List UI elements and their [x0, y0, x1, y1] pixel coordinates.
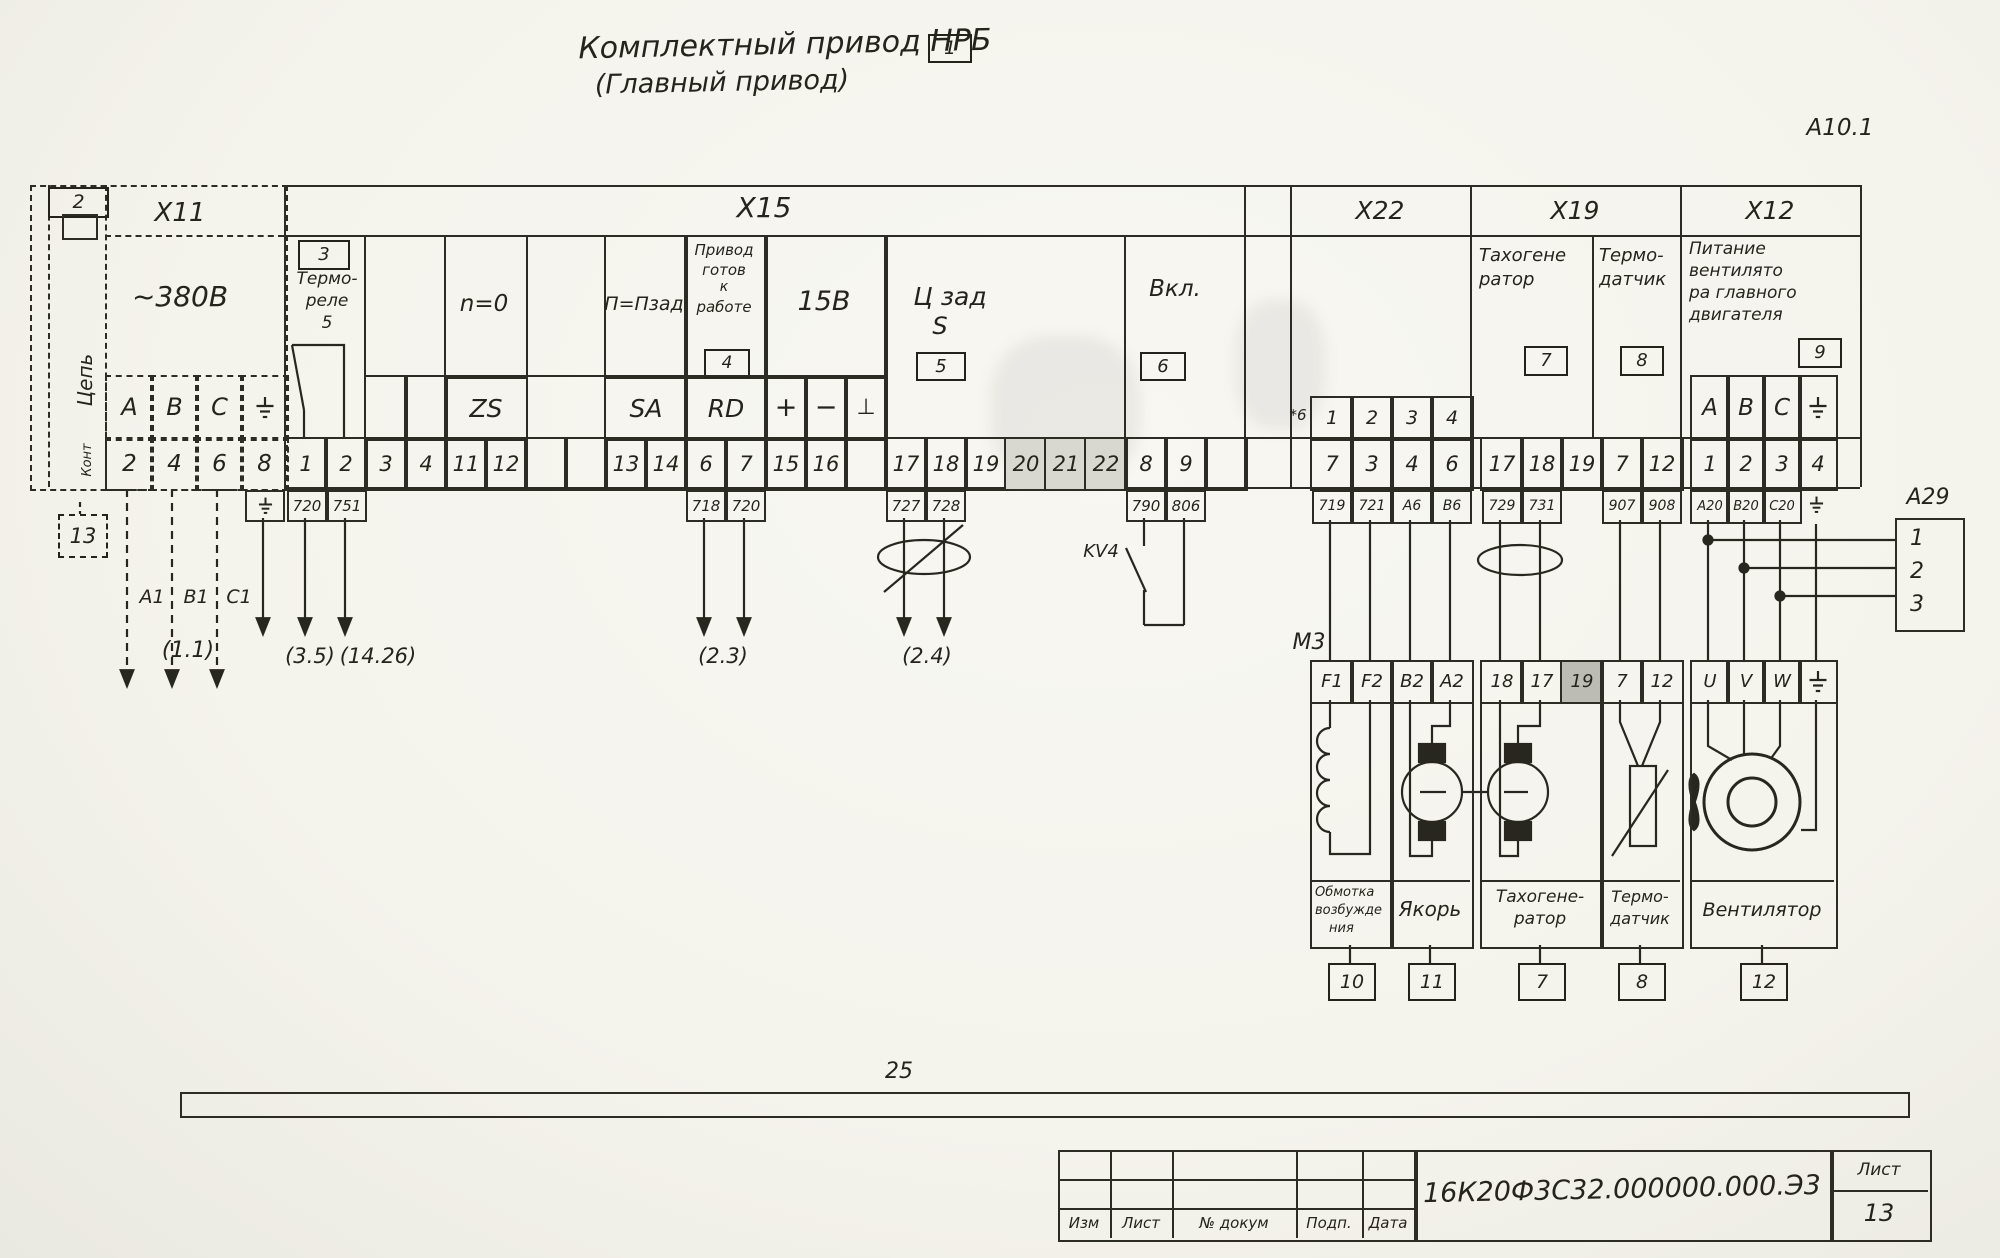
x15-contact-2: 3 — [364, 437, 408, 491]
x19-contact-1: 18 — [1520, 437, 1564, 491]
x22-contact-2: 4 — [1390, 437, 1434, 491]
x19-wire-0: 729 — [1482, 490, 1522, 524]
x15-contact-6 — [524, 437, 568, 491]
x15-contact-8: 13 — [604, 437, 648, 491]
x22-label-2: 3 — [1390, 396, 1434, 441]
label-empty-4 — [404, 375, 448, 441]
wiring-overlay — [0, 0, 2000, 1258]
tb-sheet-label: Лист — [1836, 1156, 1922, 1184]
x22-wire-2: А6 — [1392, 490, 1432, 524]
a29-label: А29 — [1896, 484, 1960, 512]
grid-line — [1860, 185, 1862, 487]
x19-thermo-l1: Термо- — [1596, 244, 1683, 268]
x19-tacho-l1: Тахогене — [1476, 244, 1589, 268]
x12-ref: 9 — [1798, 338, 1842, 368]
x12-wire-ground-icon — [1800, 490, 1832, 520]
label-plus: + — [764, 375, 808, 441]
vkl-ref: 6 — [1140, 352, 1186, 381]
x12-contact-2: 3 — [1762, 437, 1802, 491]
m3-terminal-9: U — [1690, 660, 1730, 704]
m3-ref-12: 12 — [1740, 963, 1788, 1001]
x19-contact-3: 7 — [1600, 437, 1644, 491]
x11-wire-ground-icon — [245, 490, 285, 522]
x22-contact-3: 6 — [1430, 437, 1474, 491]
x15-contact-12: 15 — [764, 437, 808, 491]
label-zs: ZS — [444, 375, 528, 441]
x12-wire-1: В20 — [1726, 490, 1766, 524]
x12-label-ground-icon — [1798, 375, 1838, 441]
x12-feed-l1: Питание — [1686, 238, 1839, 260]
label-rd: RD — [684, 375, 768, 441]
m3-terminal-0: F1 — [1310, 660, 1354, 704]
x12-contact-0: 1 — [1690, 437, 1730, 491]
m3-sec1-l2: возбужде — [1312, 902, 1391, 920]
x15-contact-17: 19 — [964, 437, 1008, 491]
x15-contact-9: 14 — [644, 437, 688, 491]
x19-wire-1: 731 — [1522, 490, 1562, 524]
x19-tacho-l2: ратор — [1476, 268, 1589, 292]
x11-label-1: В — [150, 375, 199, 441]
m3-terminal-6: 19 — [1560, 660, 1604, 704]
x15-contact-11: 7 — [724, 437, 768, 491]
x11-label-0: А — [105, 375, 154, 441]
wire-728: 728 — [926, 490, 966, 522]
m3-terminal-2: В2 — [1390, 660, 1434, 704]
kv4-contact-icon — [1126, 518, 1184, 625]
m3-ref-10: 10 — [1328, 963, 1376, 1001]
x19-wire-2: 907 — [1602, 490, 1642, 524]
x11-phase-a1: А1 — [132, 584, 172, 610]
x15-contact-4: 11 — [444, 437, 488, 491]
m3-sec1-l3: ния — [1326, 920, 1391, 938]
x15-contact-19: 21 — [1044, 437, 1088, 491]
x22-down-wires — [1330, 520, 1450, 660]
x15-contact-18: 20 — [1004, 437, 1048, 491]
m3-terminal-4: 18 — [1480, 660, 1524, 704]
grid-line — [284, 185, 1860, 187]
grid-line — [1124, 235, 1126, 437]
x11-phase-b1: В1 — [176, 584, 216, 610]
x19-wire-3: 908 — [1642, 490, 1682, 524]
m3-terminal-8: 12 — [1640, 660, 1684, 704]
tb-col-dokum: № докум — [1172, 1210, 1296, 1236]
x11-voltage: ~380В — [108, 278, 252, 316]
m3-terminal-7: 7 — [1600, 660, 1644, 704]
connector-header-x22: Х22 — [1335, 194, 1425, 226]
x11-phase-c1: С1 — [219, 584, 259, 610]
thermo-relay-line3: 5 — [282, 312, 372, 334]
x12-label-2: С — [1762, 375, 1802, 441]
x19-contact-4: 12 — [1640, 437, 1684, 491]
x12-contact-1: 2 — [1726, 437, 1766, 491]
c-zad-ref: 5 — [916, 352, 966, 381]
label-perp: ⊥ — [844, 375, 888, 441]
x11-label-ground-icon — [240, 375, 289, 441]
grid-line-dashed — [105, 235, 284, 237]
drive-ready-l2: готов — [686, 260, 762, 280]
a29-branch-wires — [1704, 536, 1896, 601]
label-sa: SA — [604, 375, 688, 441]
x22-label-3: 4 — [1430, 396, 1474, 441]
x15-contact-22: 9 — [1164, 437, 1208, 491]
vkl-label: Вкл. — [1133, 274, 1217, 304]
drawing-ref: А10.1 — [1795, 114, 1885, 142]
x11-label-2: С — [195, 375, 244, 441]
tb-col-podp: Подп. — [1296, 1210, 1362, 1236]
x15-contact-23 — [1204, 437, 1248, 491]
a29-pin-3: 3 — [1902, 589, 1932, 621]
kv4-label: KV4 — [1074, 540, 1128, 564]
wire-790: 790 — [1126, 490, 1166, 522]
wire-718-720-arrows — [704, 518, 744, 634]
thermo-relay-line1: Термо- — [282, 268, 372, 290]
x11-ref-bottom: 13 — [58, 514, 108, 558]
wire-751: 751 — [327, 490, 367, 522]
x12-feed-l2: вентилято — [1686, 260, 1839, 282]
x11-contact-1: 4 — [150, 437, 199, 491]
x22-contact-1: 3 — [1350, 437, 1394, 491]
n-zero-label: n=0 — [444, 288, 524, 320]
x22-wire-1: 721 — [1352, 490, 1392, 524]
m3-terminal-ground-icon — [1798, 660, 1838, 704]
drive-ready-l1: Привод — [686, 240, 762, 260]
a29-pin-1: 1 — [1902, 523, 1932, 555]
x15-contact-0: 1 — [284, 437, 328, 491]
x11-contact-3: 8 — [240, 437, 289, 491]
x22-wire-3: В6 — [1432, 490, 1472, 524]
x12-contact-3: 4 — [1798, 437, 1838, 491]
m3-ref-7: 7 — [1518, 963, 1566, 1001]
x22-note: *6 — [1284, 402, 1312, 428]
tb-sheet-number: 13 — [1844, 1196, 1914, 1232]
title-sheet-ref: 1 — [928, 34, 972, 63]
x11-circuit-col: Цепь — [71, 328, 101, 432]
x15-contact-16: 18 — [924, 437, 968, 491]
x15-contact-5: 12 — [484, 437, 528, 491]
m3-sec4-l1: Термо- — [1602, 886, 1678, 908]
thermo-relay-ref: 3 — [298, 240, 350, 270]
x12-down-wires — [1708, 520, 1816, 660]
m3-terminal-3: А2 — [1430, 660, 1474, 704]
x19-thermo-ref: 8 — [1620, 346, 1664, 376]
connector-header-x19: Х19 — [1530, 194, 1620, 226]
label-empty-3 — [364, 375, 408, 441]
wire-806: 806 — [1166, 490, 1206, 522]
shield-oval-icon — [878, 540, 970, 574]
m3-label: М3 — [1282, 628, 1336, 658]
c-zad-label1: Ц зад — [898, 280, 1002, 312]
tacho-shield-oval-icon — [1478, 545, 1562, 575]
page-title-line2: (Главный привод) — [592, 63, 853, 102]
tb-col-izm: Изм — [1058, 1210, 1110, 1236]
m3-sec1-l1: Обмотка — [1312, 884, 1391, 902]
x15-contact-20: 22 — [1084, 437, 1128, 491]
x11-dest-ref: (1.1) — [148, 636, 228, 666]
x22-wire-0: 719 — [1312, 490, 1352, 524]
x11-contact-col: Конт — [77, 435, 99, 485]
wire-727: 727 — [886, 490, 926, 522]
x15-left-down-wires — [263, 518, 345, 634]
connector-header-x12: Х12 — [1725, 194, 1815, 226]
m3-sec4-l2: датчик — [1602, 908, 1678, 930]
x19-thermo-l2: датчик — [1596, 268, 1683, 292]
tb-doc-number: 16К20Ф3С32.000000.000.Э3 — [1420, 1162, 1825, 1218]
grid-line — [1592, 235, 1594, 437]
x15-contact-13: 16 — [804, 437, 848, 491]
m3-sec5-l1: Вентилятор — [1692, 896, 1832, 924]
x22-label-0: 1 — [1310, 396, 1354, 441]
x15-contact-1: 2 — [324, 437, 368, 491]
p-pzad-label: П=Пзад — [598, 288, 690, 320]
v15-label: 15В — [779, 284, 869, 320]
m3-sec3-l1: Тахогене- — [1482, 886, 1598, 908]
x15-contact-21: 8 — [1124, 437, 1168, 491]
thermo-relay-symbol — [292, 345, 344, 437]
a29-pin-2: 2 — [1902, 556, 1932, 588]
x11-contact-2: 6 — [195, 437, 244, 491]
x15-contact-7 — [564, 437, 608, 491]
connector-header-x15: Х15 — [714, 190, 814, 226]
wire-720: 720 — [287, 490, 327, 522]
dest-ref-24: (2.4) — [894, 642, 960, 670]
x15-contact-15: 17 — [884, 437, 928, 491]
tb-col-list: Лист — [1110, 1210, 1172, 1236]
x19-tacho-ref: 7 — [1524, 346, 1568, 376]
x15-contact-14 — [844, 437, 888, 491]
x12-wire-2: С20 — [1762, 490, 1802, 524]
m3-terminal-10: V — [1726, 660, 1766, 704]
thermo-relay-line2: реле — [282, 290, 372, 312]
connector-header-x11: Х11 — [118, 196, 242, 230]
x11-contact-0: 2 — [105, 437, 154, 491]
m3-terminal-11: W — [1762, 660, 1802, 704]
x12-label-0: А — [1690, 375, 1730, 441]
c-zad-label2: S — [914, 312, 966, 342]
wire-718: 718 — [686, 490, 726, 522]
x15-contact-3: 4 — [404, 437, 448, 491]
wire-720b: 720 — [726, 490, 766, 522]
x12-label-1: В — [1726, 375, 1766, 441]
x15-contact-10: 6 — [684, 437, 728, 491]
m3-ref-11: 11 — [1408, 963, 1456, 1001]
x12-feed-l4: двигателя — [1686, 304, 1839, 326]
drive-ready-l4: работе — [686, 297, 762, 317]
schematic-canvas: Комплектный привод НРБ1(Главный привод)А… — [0, 0, 2000, 1258]
tb-col-data: Дата — [1362, 1210, 1414, 1236]
x22-label-1: 2 — [1350, 396, 1394, 441]
x19-contact-2: 19 — [1560, 437, 1604, 491]
bus-ref: 25 — [876, 1056, 922, 1088]
m3-ref-8: 8 — [1618, 963, 1666, 1001]
drive-ready-ref: 4 — [704, 349, 750, 378]
label-minus: − — [804, 375, 848, 441]
x11-ref-tab — [62, 214, 98, 240]
dest-ref-23: (2.3) — [690, 642, 756, 670]
grid-line — [1290, 185, 1292, 487]
drive-ready-l3: к — [686, 279, 762, 297]
grid-line-dashed — [48, 185, 50, 487]
x22-contact-0: 7 — [1310, 437, 1354, 491]
x19-contact-0: 17 — [1480, 437, 1524, 491]
x12-feed-l3: ра главного — [1686, 282, 1839, 304]
m3-sec3-l2: ратор — [1482, 908, 1598, 930]
wire-727-728-arrows — [878, 518, 970, 634]
x19-down-wires — [1478, 520, 1660, 660]
bus-bar — [180, 1092, 1910, 1118]
m3-sec2-l1: Якорь — [1390, 896, 1470, 924]
dest-ref-1426: (14.26) — [332, 642, 424, 670]
grid-line — [524, 375, 604, 377]
x12-wire-0: А20 — [1690, 490, 1730, 524]
m3-terminal-1: F2 — [1350, 660, 1394, 704]
m3-terminal-5: 17 — [1520, 660, 1564, 704]
